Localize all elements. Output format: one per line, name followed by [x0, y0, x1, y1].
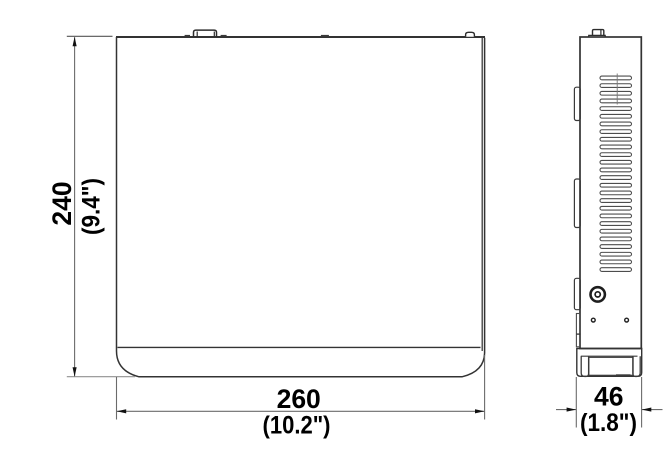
svg-text:(9.4"): (9.4") [78, 178, 106, 235]
svg-text:(1.8"): (1.8") [580, 409, 637, 437]
svg-text:(10.2"): (10.2") [263, 411, 331, 439]
svg-text:260: 260 [277, 384, 321, 414]
svg-text:46: 46 [594, 382, 623, 412]
svg-text:240: 240 [47, 181, 77, 225]
